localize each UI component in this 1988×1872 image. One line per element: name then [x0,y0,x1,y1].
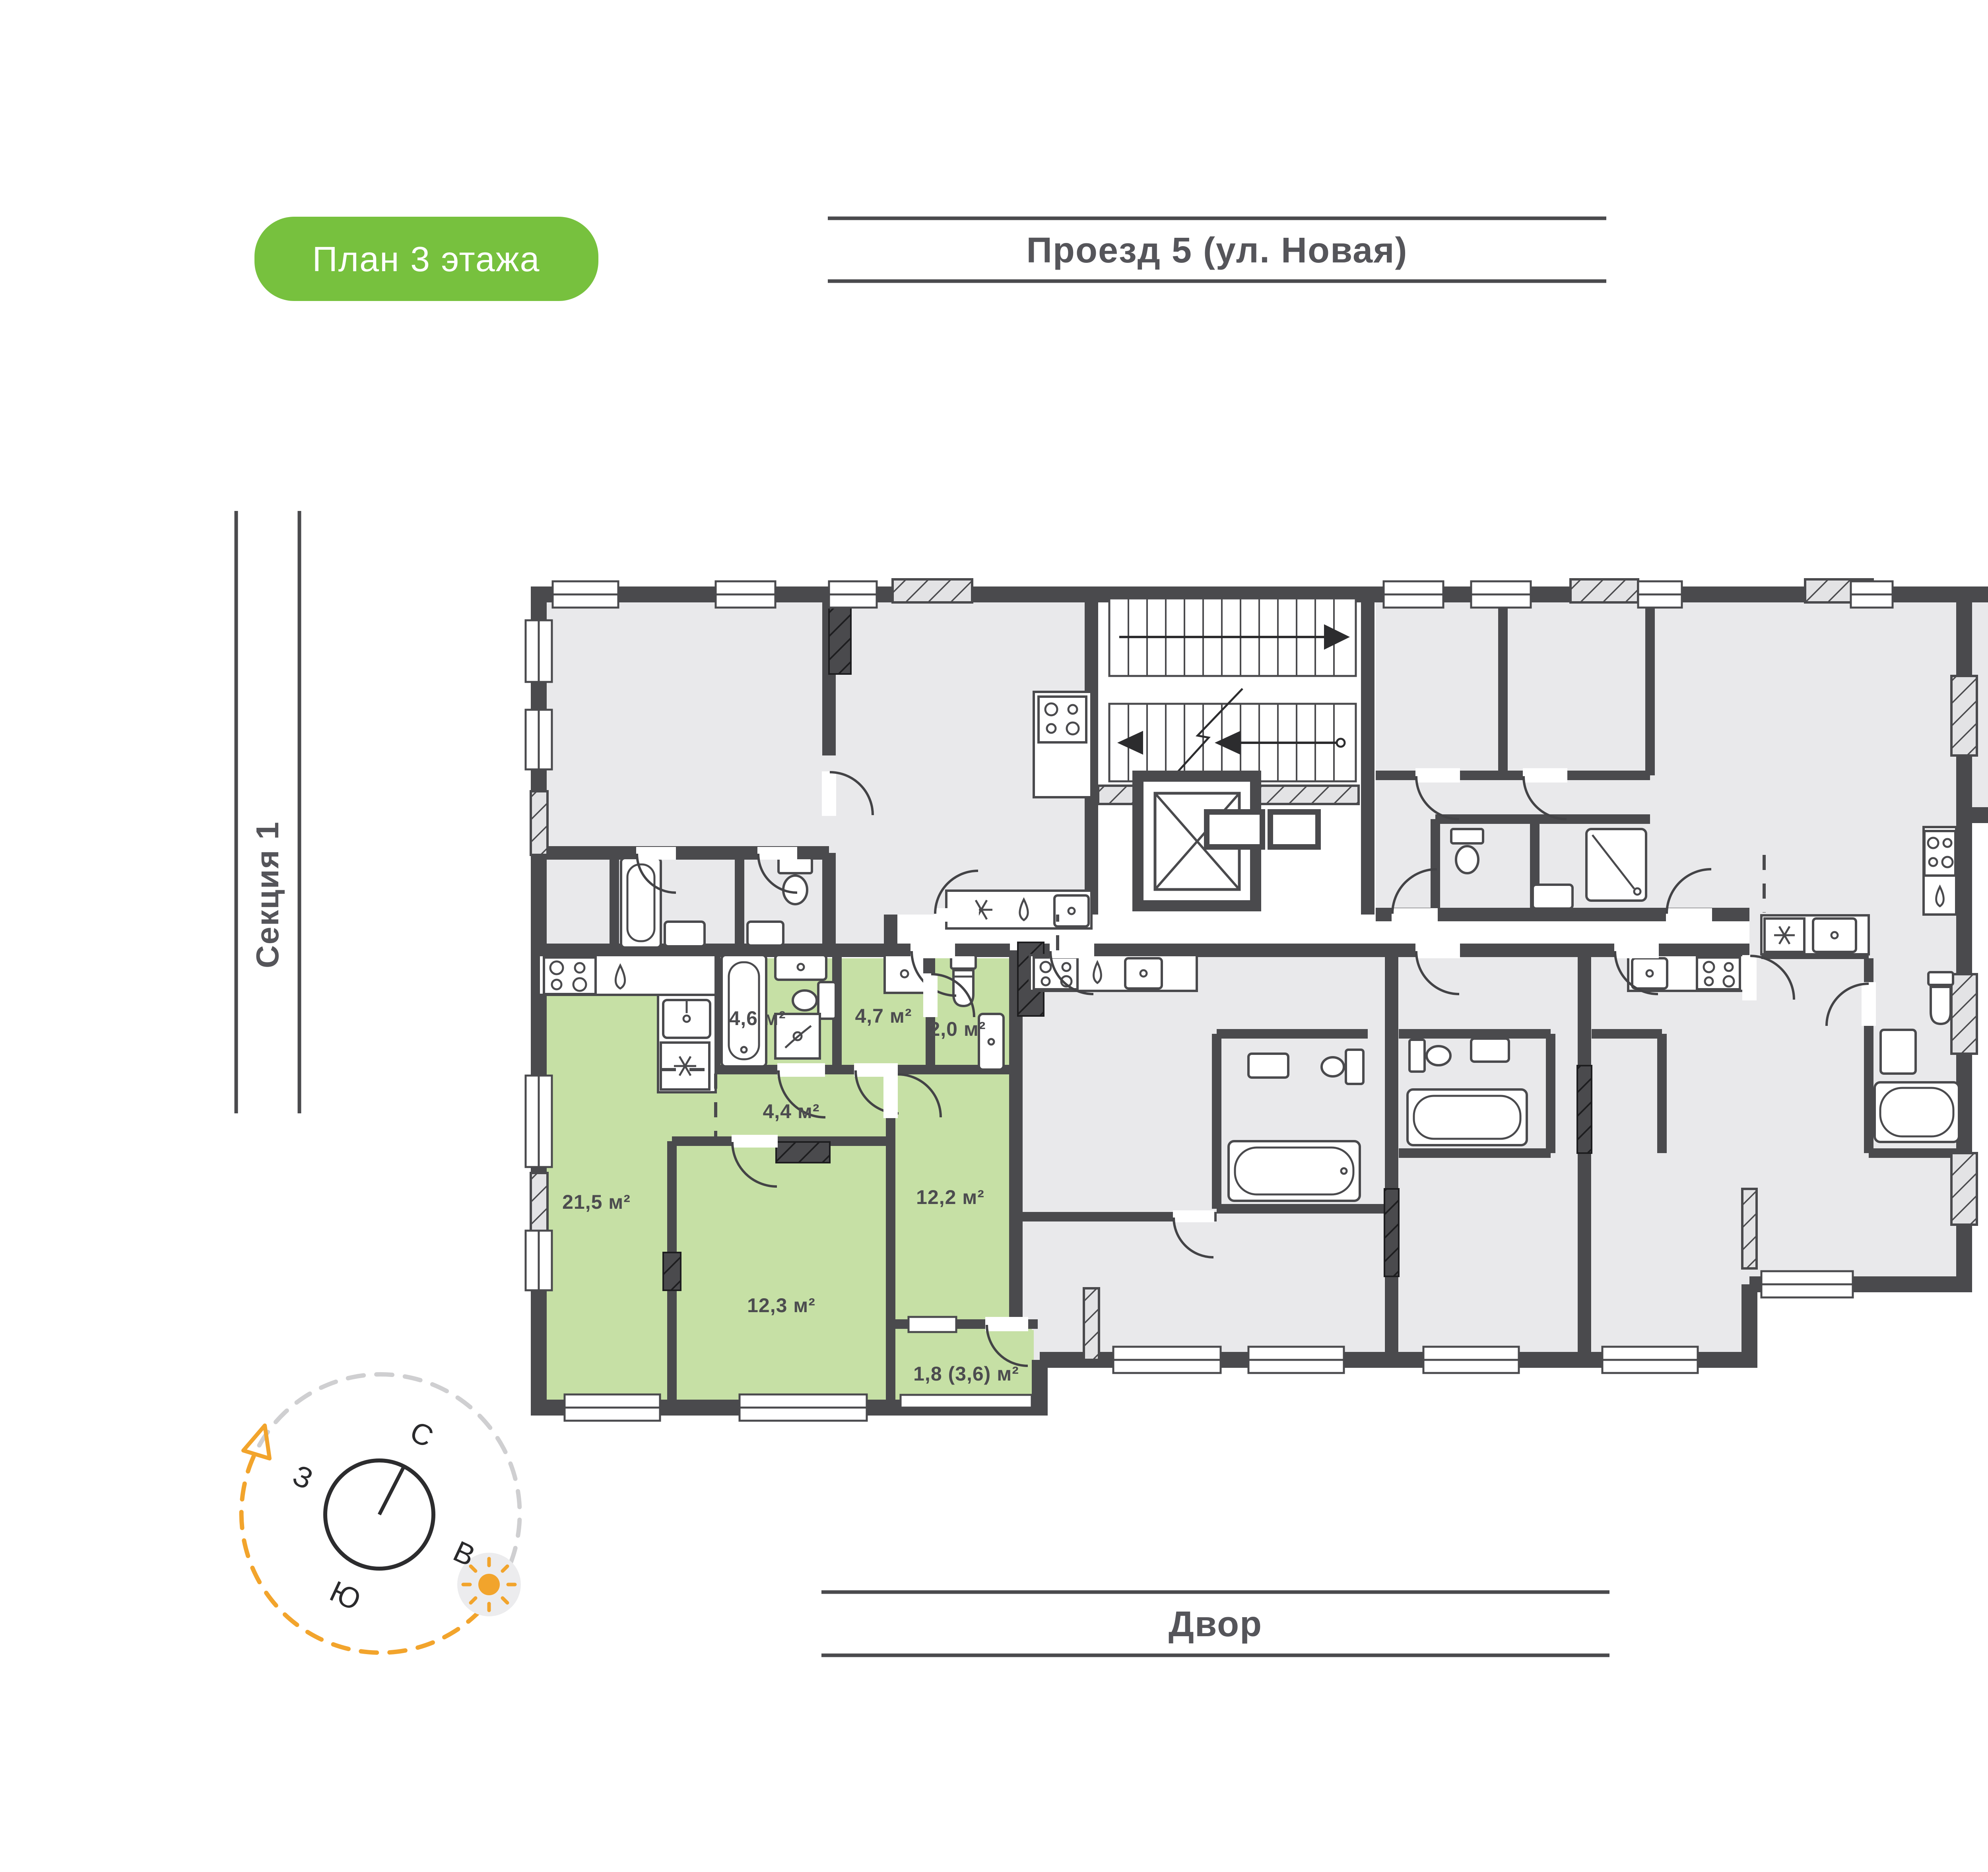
section-left-block: Секция 1 [236,511,299,1113]
compass-west-label: З [288,1458,318,1496]
yard-label: Двор [1169,1604,1262,1644]
floor-badge-label: План 3 этажа [312,239,540,279]
shower-icon [1586,829,1646,901]
toilet-icon-6 [1928,972,1953,1024]
sink-icon-3 [747,922,783,946]
sink-icon-11 [1881,1030,1916,1074]
service-closet-1 [1207,812,1262,847]
section-left-label: Секция 1 [250,821,285,968]
room-area-label-wc: 2,0 м² [929,1018,986,1040]
street-label-block: Проезд 5 (ул. Новая) [828,218,1606,281]
bath-sink-icon [775,955,826,980]
sink-icon-5 [1533,885,1573,909]
stove-icon-5 [1697,957,1740,989]
stove-icon-3 [1924,831,1955,876]
washing-machine-icon-3 [1765,919,1804,952]
sink-icon-8 [1471,1039,1509,1062]
building-plan: 21,5 м² 12,3 м² 12,2 м² 4,6 м² 4,7 м² 2,… [526,579,1988,1421]
sink-icon-6 [1125,958,1162,988]
compass-south-label: Ю [325,1574,366,1617]
floor-badge: План 3 этажа [254,217,598,301]
sink-icon-7 [1248,1054,1288,1078]
sun-path-arrow [243,1425,270,1458]
washing-machine-icon [661,1043,709,1089]
floor-plan-page: План 3 этажа Проезд 5 (ул. Новая) Двор С… [0,0,1988,1872]
room-area-label-bathroom: 4,6 м² [729,1007,786,1029]
compass: С В Ю З [241,1374,521,1653]
sink-icon-10 [1813,919,1856,952]
room-area-label-hall: 4,4 м² [763,1100,819,1122]
sink-icon-2 [665,922,705,946]
staircase [1109,598,1356,788]
sink-icon [663,1000,710,1038]
bathtub-icon-5 [1875,1082,1959,1142]
room-area-label-bathroom-2: 4,7 м² [855,1005,912,1027]
service-closet-2 [1270,812,1318,847]
bathtub-icon-3 [1229,1141,1360,1201]
street-label: Проезд 5 (ул. Новая) [1026,231,1408,270]
bathtub-icon-4 [1408,1089,1527,1145]
stove-icon-2 [1039,697,1086,742]
sink-icon-9 [1632,958,1667,988]
sink-icon-4 [1054,895,1089,926]
room-area-label-bedroom-1: 12,3 м² [747,1294,815,1317]
room-area-label-balcony: 1,8 (3,6) м² [913,1363,1019,1385]
stove-icon [544,957,596,994]
room-area-label-kitchen-living: 21,5 м² [562,1191,631,1213]
yard-label-block: Двор [821,1592,1609,1655]
compass-north-label: С [405,1415,439,1454]
room-area-label-bedroom-2: 12,2 м² [916,1186,984,1208]
